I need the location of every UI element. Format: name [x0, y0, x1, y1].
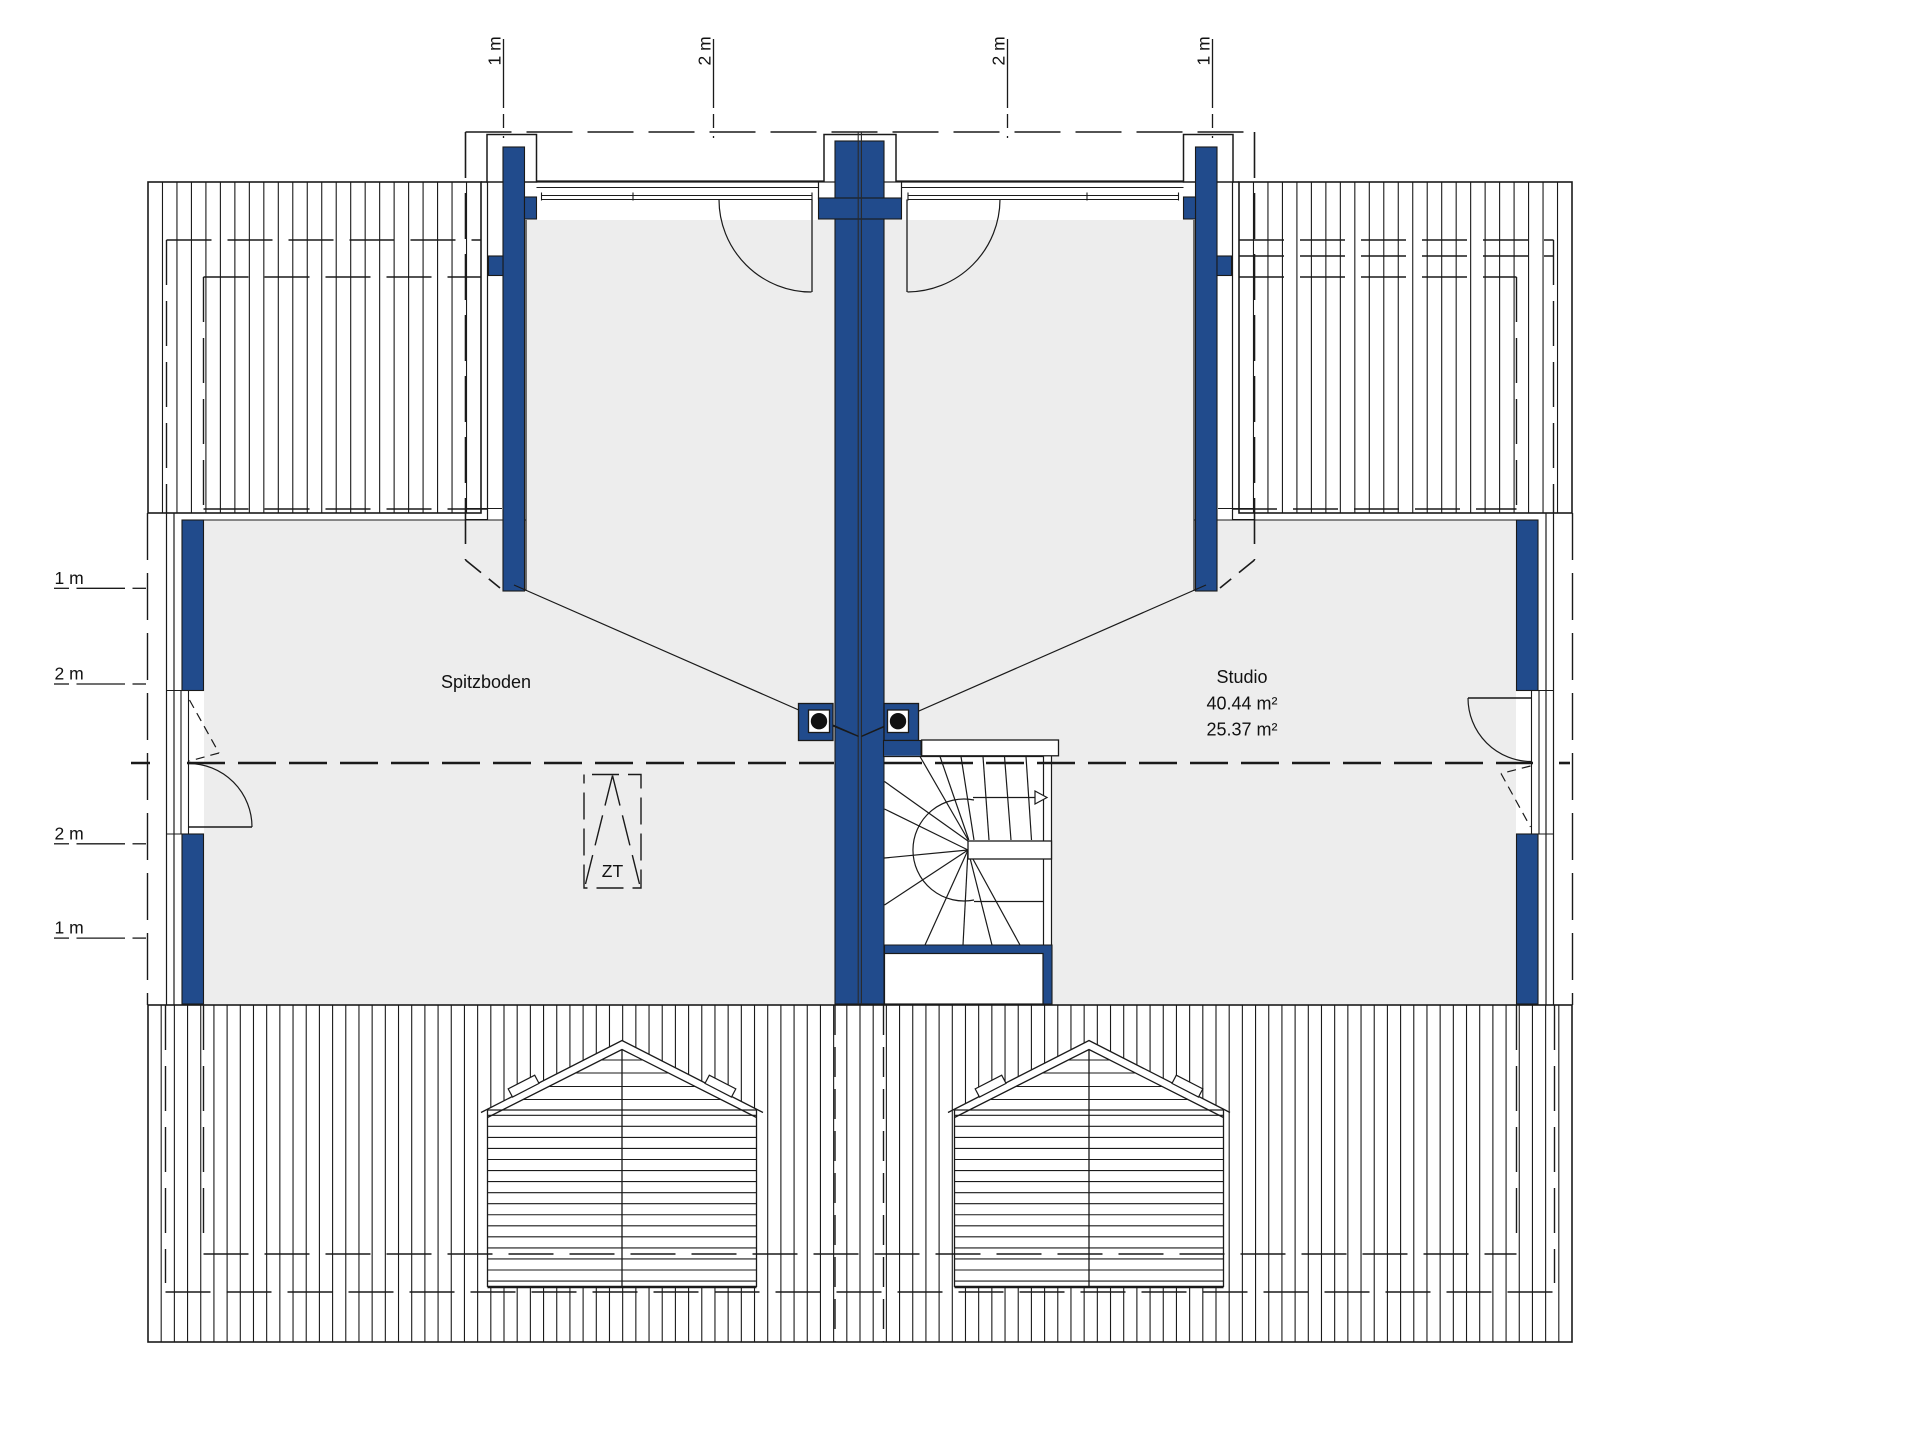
- svg-text:Studio: Studio: [1216, 667, 1267, 687]
- svg-text:2 m: 2 m: [55, 823, 84, 843]
- svg-text:1 m: 1 m: [55, 918, 84, 938]
- svg-text:2 m: 2 m: [989, 36, 1009, 65]
- svg-text:40.44 m²: 40.44 m²: [1206, 694, 1277, 714]
- svg-text:1 m: 1 m: [485, 36, 505, 65]
- svg-text:2 m: 2 m: [55, 664, 84, 684]
- svg-text:1 m: 1 m: [55, 568, 84, 588]
- svg-text:2 m: 2 m: [695, 36, 715, 65]
- svg-text:Spitzboden: Spitzboden: [441, 672, 531, 692]
- svg-text:ZT: ZT: [602, 861, 624, 881]
- svg-text:1 m: 1 m: [1194, 36, 1214, 65]
- svg-text:25.37 m²: 25.37 m²: [1206, 720, 1277, 740]
